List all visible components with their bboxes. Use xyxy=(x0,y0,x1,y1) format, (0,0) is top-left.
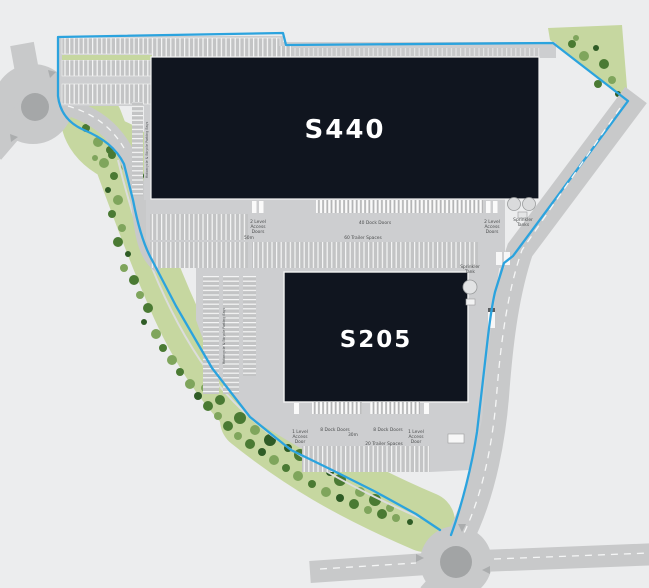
building-s440-label: S440 xyxy=(305,115,386,145)
dock-doors-s205-left xyxy=(312,402,362,414)
tree-icon xyxy=(364,506,372,514)
pump-house xyxy=(466,299,475,305)
parking-row-north xyxy=(152,46,292,58)
parking-row-north-east xyxy=(292,48,540,56)
roundabout-northwest-island xyxy=(21,93,49,121)
tree-icon xyxy=(579,51,589,61)
tree-icon xyxy=(120,264,128,272)
s205-dock-doors-left-label: 8 Dock Doors xyxy=(320,427,350,433)
parking-row-yard xyxy=(150,242,248,268)
tree-icon xyxy=(110,172,118,180)
sprinkler-tank-icon xyxy=(508,198,521,211)
building-s205-label: S205 xyxy=(340,327,413,353)
dock-doors-s205-right xyxy=(370,402,420,414)
tree-icon xyxy=(143,303,153,313)
tree-icon xyxy=(245,439,255,449)
tree-icon xyxy=(167,355,177,365)
tree-icon xyxy=(258,448,266,456)
site-plan: S440 S205 xyxy=(0,0,649,588)
gatehouse xyxy=(448,434,464,443)
tree-icon xyxy=(159,344,167,352)
tree-icon xyxy=(573,35,579,41)
tree-icon xyxy=(185,379,195,389)
tree-icon xyxy=(118,224,126,232)
s440-trailer-spaces-label: 60 Trailer Spaces xyxy=(344,235,382,241)
s440-access-left-label: Doors xyxy=(252,229,266,235)
tree-icon xyxy=(321,487,331,497)
dock-doors-s440 xyxy=(316,200,484,213)
tree-icon xyxy=(92,155,98,161)
sprinkler-tanks-label: Tanks xyxy=(516,222,530,228)
level-access-door xyxy=(259,201,264,213)
truck-icon xyxy=(496,252,502,265)
tree-icon xyxy=(203,401,213,411)
parking-row-label-west: Motorcycle & Bicycle Parking Bays xyxy=(145,121,149,178)
level-access-door xyxy=(294,403,299,414)
sprinkler-tank-label: Tank xyxy=(464,269,475,275)
parking-column-s205 xyxy=(203,276,219,394)
tree-icon xyxy=(568,40,576,48)
tree-icon xyxy=(214,412,222,420)
sprinkler-tank-icon xyxy=(523,198,536,211)
tree-icon xyxy=(108,210,116,218)
parking-row-label-south: Motorcycle & Bicycle Parking Bays xyxy=(222,307,226,364)
tree-icon xyxy=(250,425,260,435)
s205-dock-doors-right-label: 8 Dock Doors xyxy=(373,427,403,433)
tree-icon xyxy=(407,519,413,525)
parking-column-west xyxy=(132,102,143,196)
s440-access-right-label: Doors xyxy=(486,229,500,235)
tree-icon xyxy=(349,499,359,509)
s440-dock-doors-label: 40 Dock Doors xyxy=(359,220,392,226)
tree-icon xyxy=(223,421,233,431)
tree-icon xyxy=(234,412,246,424)
tree-icon xyxy=(151,329,161,339)
parking-column-s205 xyxy=(243,276,256,376)
tree-icon xyxy=(113,195,123,205)
s205-access-right-label: Door xyxy=(411,439,422,445)
tree-icon xyxy=(269,455,279,465)
parking-row-yard xyxy=(150,214,248,240)
tree-icon xyxy=(336,494,344,502)
tree-icon xyxy=(593,45,599,51)
tree-icon xyxy=(377,509,387,519)
road-arm-se-right xyxy=(456,554,649,562)
tree-icon xyxy=(215,395,225,405)
tree-icon xyxy=(194,392,202,400)
tree-icon xyxy=(176,368,184,376)
tree-icon xyxy=(234,432,242,440)
sprinkler-tank-icon xyxy=(463,280,477,294)
site-plan-canvas: S440 S205 xyxy=(0,0,649,588)
s440-yard-depth-label: 50m xyxy=(244,235,254,241)
tree-icon xyxy=(141,319,147,325)
tree-icon xyxy=(282,464,290,472)
s205-trailer-spaces-label: 20 Trailer Spaces xyxy=(365,441,403,447)
level-access-door xyxy=(424,403,429,414)
tree-icon xyxy=(136,291,144,299)
tree-icon xyxy=(113,237,123,247)
tree-icon xyxy=(105,187,111,193)
s205-access-left-label: Door xyxy=(295,439,306,445)
level-access-door xyxy=(486,201,491,213)
tree-icon xyxy=(308,480,316,488)
tree-icon xyxy=(608,76,616,84)
tree-icon xyxy=(125,251,131,257)
tree-icon xyxy=(99,158,109,168)
tree-icon xyxy=(129,275,139,285)
tree-icon xyxy=(599,59,609,69)
level-access-door xyxy=(493,201,498,213)
trailer-spaces-row-s205 xyxy=(302,446,430,472)
level-access-door xyxy=(252,201,257,213)
roundabout-southeast-island xyxy=(440,546,472,578)
tree-icon xyxy=(293,471,303,481)
trailer-spaces-row-s440 xyxy=(252,242,478,268)
s205-yard-depth-label: 30m xyxy=(348,432,358,438)
road-arm-se-left xyxy=(310,562,456,572)
tree-icon xyxy=(392,514,400,522)
